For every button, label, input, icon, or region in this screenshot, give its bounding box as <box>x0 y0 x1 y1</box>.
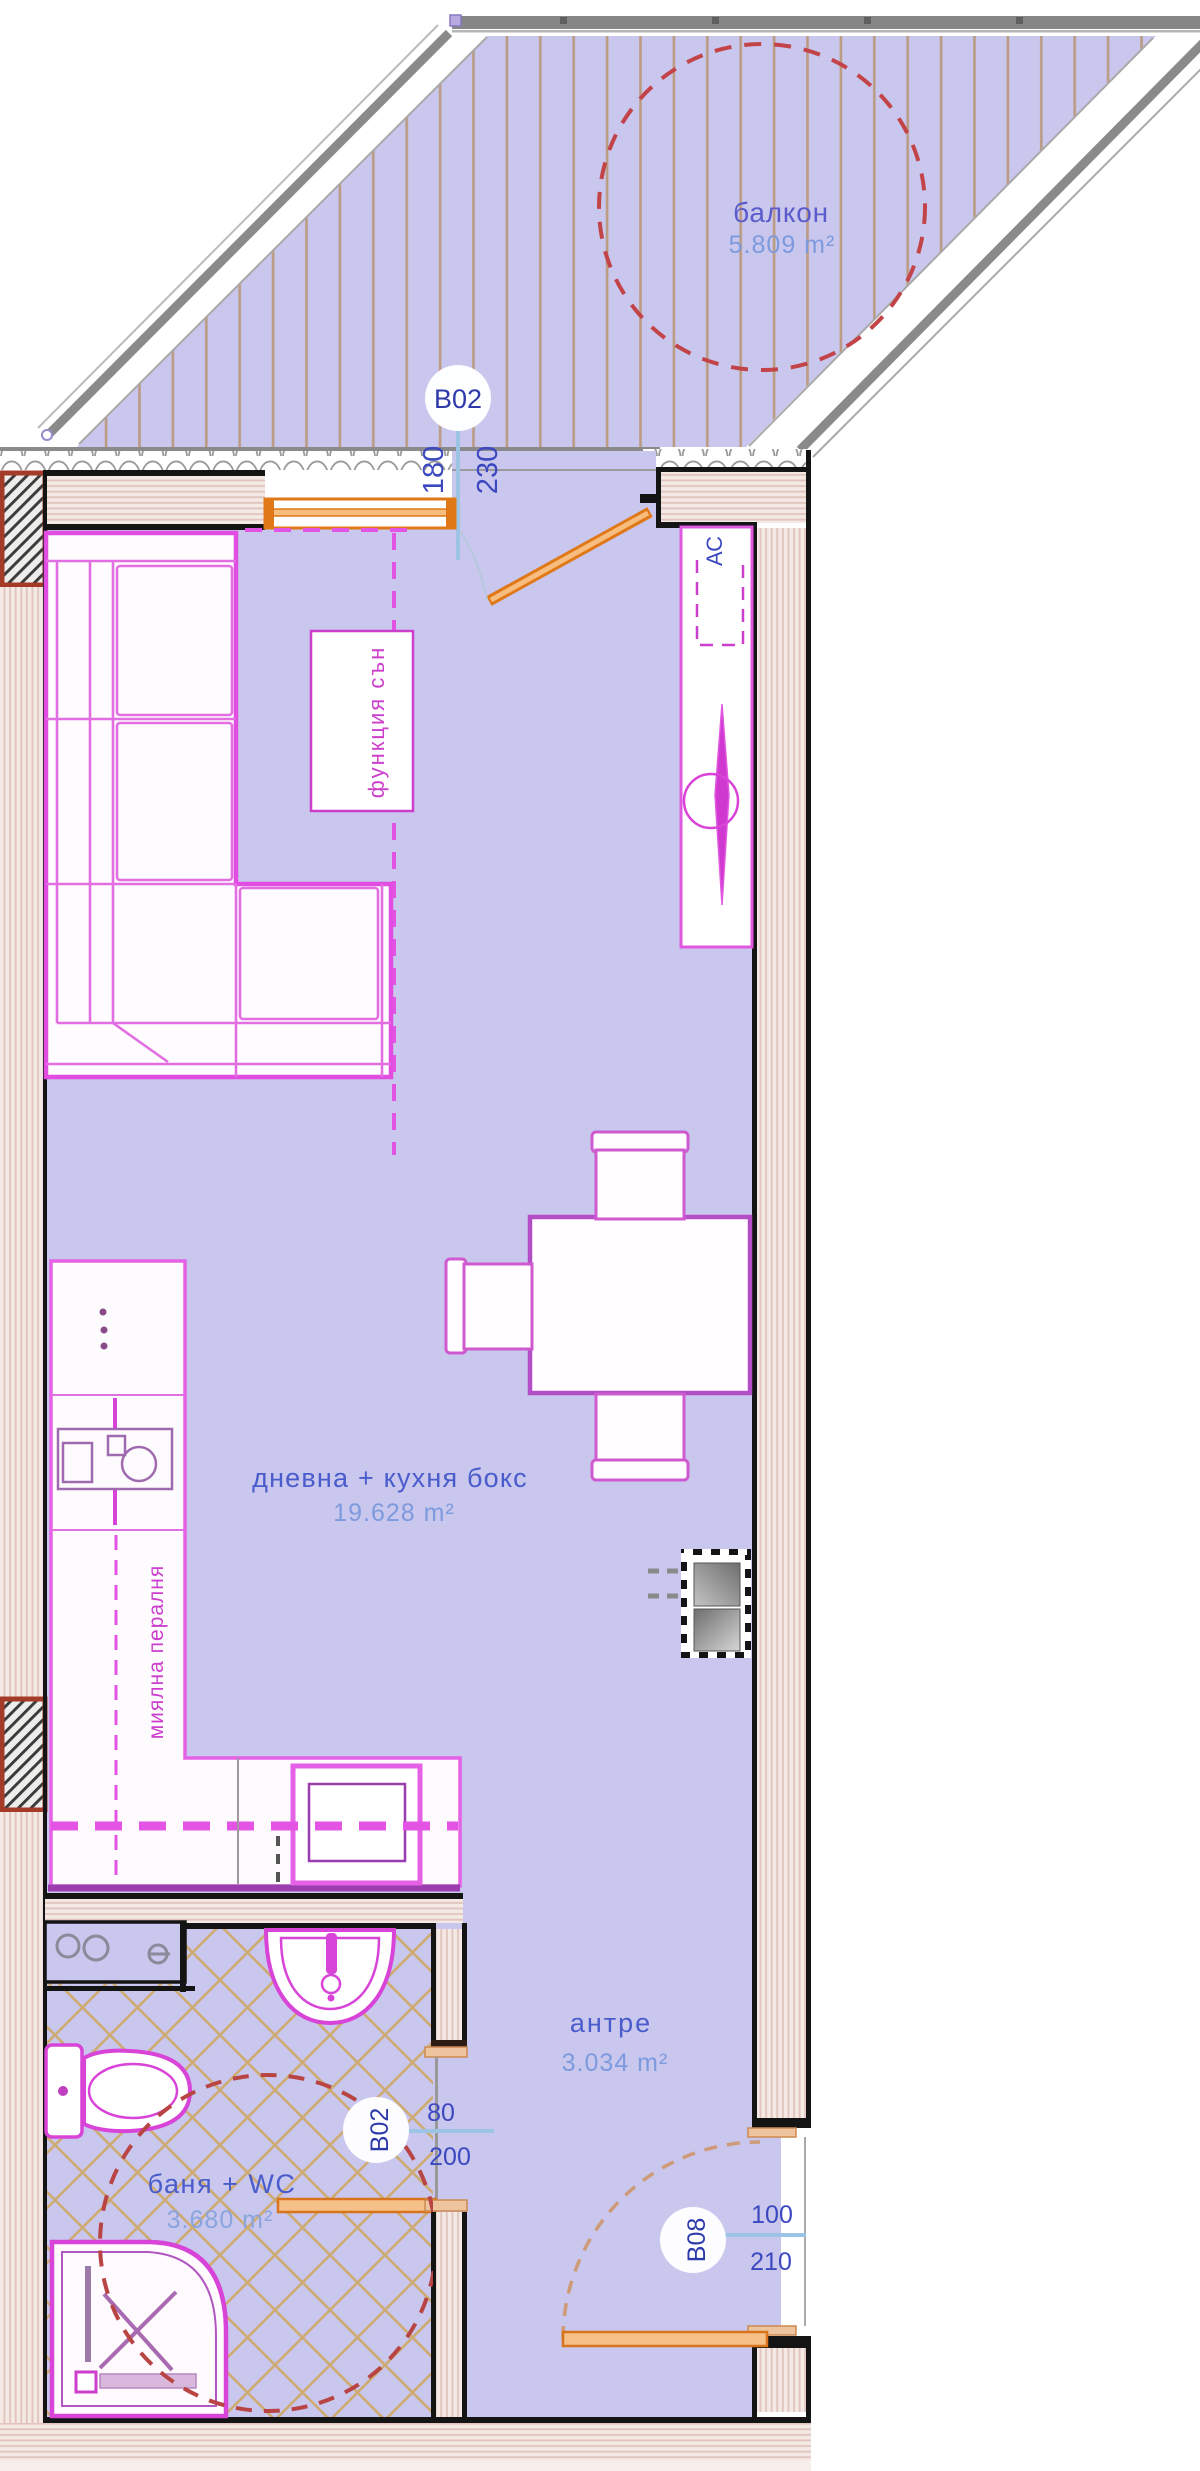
svg-text:3.034 m²: 3.034 m² <box>562 2049 669 2077</box>
svg-text:дневна + кухня бокс: дневна + кухня бокс <box>252 1463 528 1493</box>
svg-text:210: 210 <box>750 2248 792 2276</box>
svg-text:80: 80 <box>427 2099 455 2127</box>
svg-text:миялна пералня: миялна пералня <box>145 1565 168 1740</box>
svg-text:3.680 m²: 3.680 m² <box>167 2206 274 2234</box>
svg-text:230: 230 <box>472 446 504 494</box>
svg-text:баня + WC: баня + WC <box>148 2169 297 2199</box>
svg-text:180: 180 <box>418 446 450 494</box>
svg-text:B02: B02 <box>434 384 482 414</box>
svg-text:5.809 m²: 5.809 m² <box>729 231 836 259</box>
svg-text:антре: антре <box>570 2008 652 2038</box>
svg-text:200: 200 <box>429 2143 471 2171</box>
svg-text:B02: B02 <box>366 2108 394 2152</box>
svg-text:19.628 m²: 19.628 m² <box>333 1499 455 1527</box>
svg-text:балкон: балкон <box>733 197 829 228</box>
svg-text:B08: B08 <box>683 2218 711 2262</box>
svg-text:100: 100 <box>751 2201 793 2229</box>
svg-text:АС: АС <box>702 536 727 566</box>
svg-text:функция сън: функция сън <box>364 646 389 798</box>
